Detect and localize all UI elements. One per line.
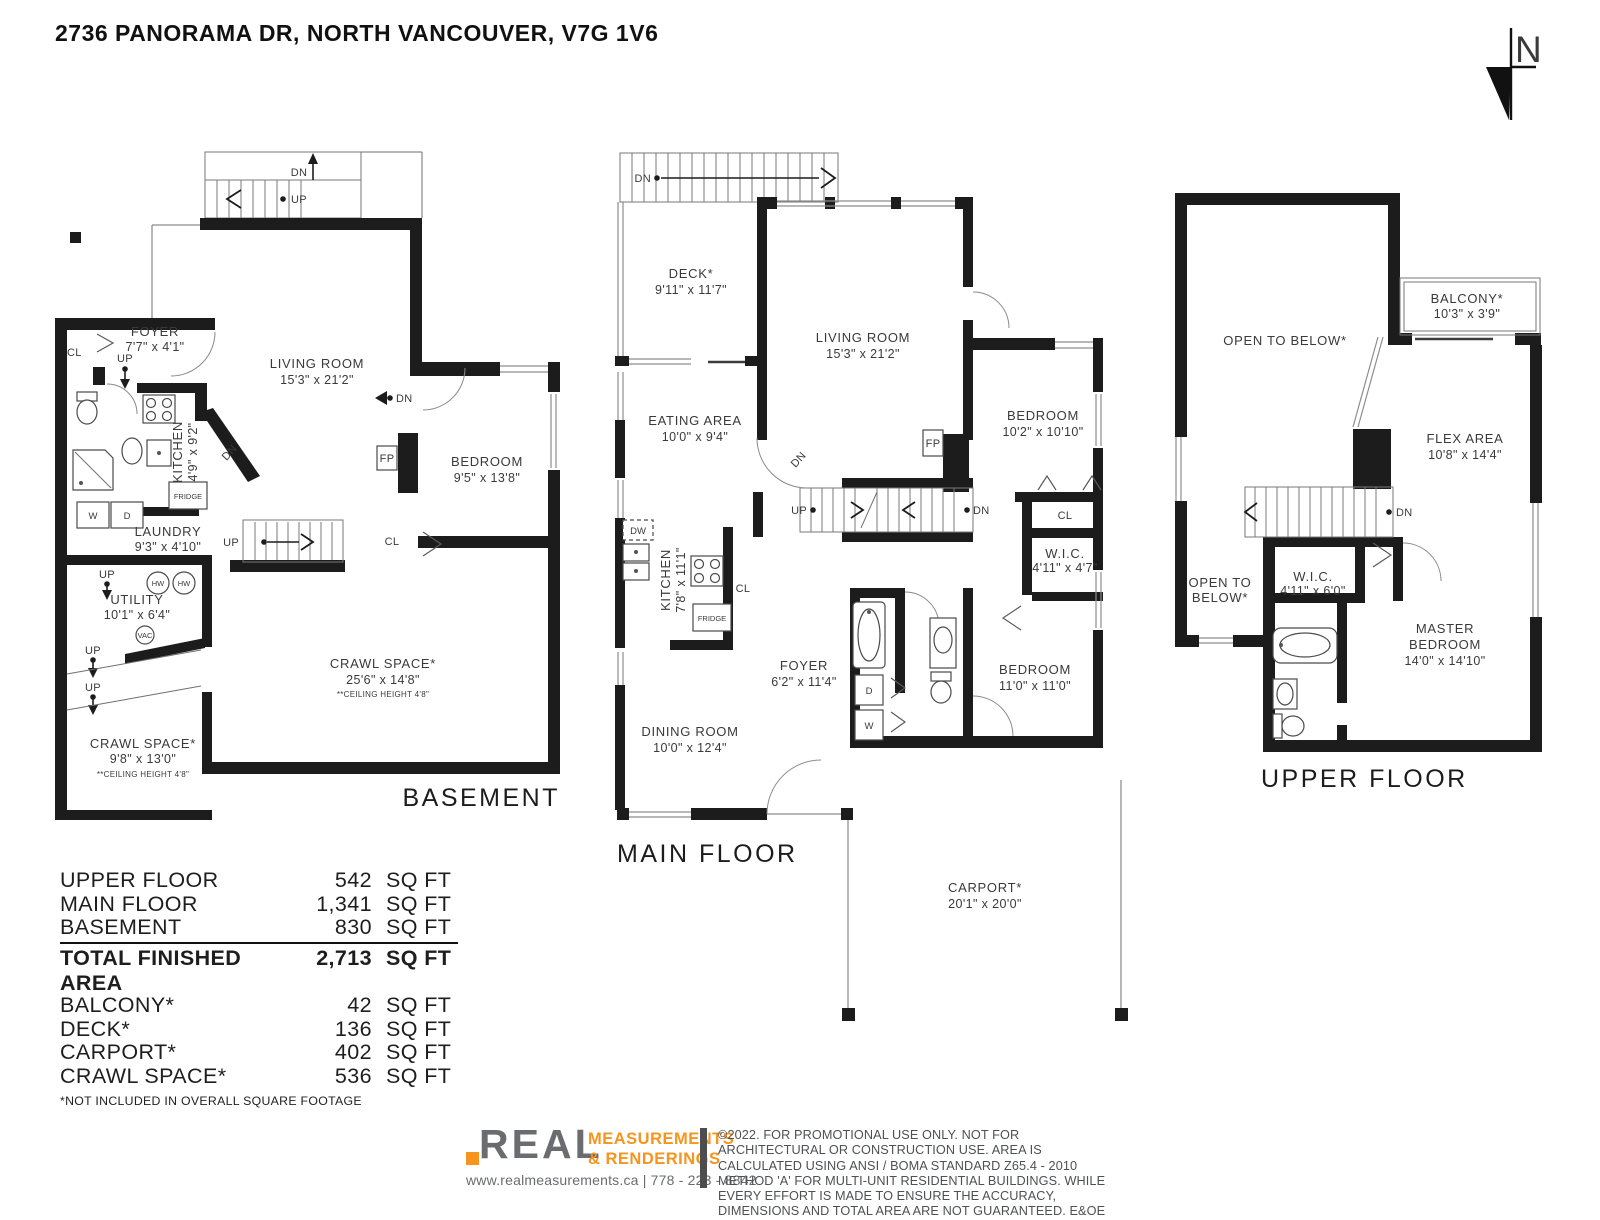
room-label: DECK*	[669, 266, 714, 281]
floor-title-main: MAIN FLOOR	[617, 840, 798, 868]
stair-dn-label: DN	[291, 167, 308, 179]
mid-stairs: UP	[223, 520, 343, 562]
room-label: CRAWL SPACE*	[330, 656, 436, 671]
north-label: N	[1515, 29, 1542, 70]
stair-dn-label: DN	[635, 173, 652, 185]
stairs: DN	[620, 153, 838, 202]
area-label: BASEMENT	[60, 915, 286, 940]
room-label: DINING ROOM	[641, 724, 738, 739]
room-dims: 14'0" x 14'10"	[1404, 654, 1485, 668]
floor-title-basement: BASEMENT	[402, 784, 560, 812]
toilet-icon	[1273, 714, 1304, 738]
mid-stairs: UP DN	[791, 488, 989, 532]
room-label: MASTER	[1416, 621, 1474, 636]
room-dims: 15'3" x 21'2"	[826, 347, 900, 361]
area-row-basement: BASEMENT 830 SQ FT	[60, 915, 458, 939]
room-dims: 7'7" x 4'1"	[125, 340, 184, 354]
fridge-label: FRIDGE	[174, 492, 202, 501]
area-row-deck: DECK* 136 SQ FT	[60, 1017, 458, 1041]
mid-stair-up-label: UP	[791, 505, 807, 517]
north-arrow-icon: N	[1455, 15, 1555, 135]
room-label: FLEX AREA	[1426, 431, 1503, 446]
kitchen-sink-icon	[623, 544, 649, 580]
room-dims: 25'6" x 14'8"	[346, 673, 420, 687]
stove-icon	[691, 556, 723, 586]
room-label: BEDROOM	[1409, 637, 1481, 652]
room-label: BALCONY*	[1431, 291, 1504, 306]
room-label: FOYER	[780, 658, 828, 673]
vanity-sink-icon	[930, 618, 956, 668]
room-label: OPEN TO BELOW*	[1223, 333, 1346, 348]
room-dims: 10'3" x 3'9"	[1434, 307, 1500, 321]
mid-stair-up-label: UP	[223, 537, 239, 549]
room-note: **CEILING HEIGHT 4'8"	[337, 690, 429, 699]
room-label: EATING AREA	[648, 413, 741, 428]
mid-stair-dn-label: DN	[973, 505, 990, 517]
closet-label: CL	[1058, 510, 1073, 522]
basement-floor-plan: DN UP	[55, 140, 570, 830]
dn-label: DN	[396, 393, 413, 405]
up-label: UP	[85, 682, 101, 694]
area-label: UPPER FLOOR	[60, 868, 286, 893]
dryer-label: D	[866, 686, 873, 697]
floor-title-upper: UPPER FLOOR	[1261, 765, 1468, 793]
toilet-icon	[77, 392, 97, 424]
room-label: KITCHEN	[658, 549, 673, 611]
logo-wordmark: REAL	[479, 1124, 603, 1165]
room-dims: 11'0" x 11'0"	[999, 679, 1071, 693]
area-value: 542	[286, 868, 372, 893]
area-footnote: *NOT INCLUDED IN OVERALL SQUARE FOOTAGE	[60, 1094, 458, 1108]
room-dims: 15'3" x 21'2"	[280, 373, 354, 387]
fp-label: FP	[380, 453, 395, 465]
room-label: CARPORT*	[948, 880, 1022, 895]
hot-water-tank-icon: HW HW	[147, 572, 195, 594]
washer-label: W	[865, 721, 874, 732]
area-label: TOTAL FINISHED AREA	[60, 946, 286, 996]
area-label: MAIN FLOOR	[60, 892, 286, 917]
fp-label: FP	[926, 438, 941, 450]
stairs: DN	[1245, 487, 1413, 537]
fireplace-icon: FP	[377, 446, 397, 470]
room-dims: 9'11" x 11'7"	[655, 283, 727, 297]
room-label: BEDROOM	[451, 454, 523, 469]
area-value: 136	[286, 1017, 372, 1042]
room-dims: 10'1" x 6'4"	[104, 608, 170, 622]
disclaimer-text: ©2022. FOR PROMOTIONAL USE ONLY. NOT FOR…	[718, 1128, 1112, 1220]
area-label: DECK*	[60, 1017, 286, 1042]
door-arcs	[1373, 543, 1441, 581]
vac-label: VAC	[138, 631, 153, 640]
area-label: BALCONY*	[60, 993, 286, 1018]
logo-tagline-1: MEASUREMENTS	[588, 1130, 734, 1149]
hw-label: HW	[178, 579, 191, 588]
logo-contact-line: www.realmeasurements.ca | 778 - 223 - 88…	[466, 1172, 757, 1188]
up-label: UP	[99, 569, 115, 581]
closet-label: CL	[736, 583, 751, 595]
stairs: DN UP	[205, 152, 422, 218]
page-title: 2736 PANORAMA DR, NORTH VANCOUVER, V7G 1…	[55, 20, 658, 47]
closet-label: CL	[67, 347, 82, 359]
bathtub-icon	[853, 602, 885, 668]
vacuum-icon: VAC	[136, 626, 154, 644]
room-dims: 10'0" x 12'4"	[653, 741, 727, 755]
area-summary-table: UPPER FLOOR 542 SQ FT MAIN FLOOR 1,341 S…	[60, 868, 458, 1108]
room-label: BELOW*	[1192, 590, 1248, 605]
area-row-total: TOTAL FINISHED AREA 2,713 SQ FT	[60, 942, 458, 970]
fireplace-icon: FP	[923, 430, 943, 456]
area-row-balcony: BALCONY* 42 SQ FT	[60, 993, 458, 1017]
room-label: CRAWL SPACE*	[90, 736, 196, 751]
room-dims: 10'8" x 14'4"	[1428, 448, 1502, 462]
area-unit: SQ FT	[372, 1040, 458, 1065]
up-label: UP	[117, 353, 133, 365]
carport: CARPORT* 20'1" x 20'0"	[842, 780, 1128, 1021]
room-dims: 10'2" x 10'10"	[1002, 425, 1083, 439]
hw-label: HW	[152, 579, 165, 588]
area-row-main-floor: MAIN FLOOR 1,341 SQ FT	[60, 892, 458, 916]
room-dims: 9'8" x 13'0"	[110, 752, 176, 766]
room-label: BEDROOM	[1007, 408, 1079, 423]
area-label: CARPORT*	[60, 1040, 286, 1065]
washer-box: W	[855, 710, 883, 740]
stair-dn-label: DN	[1396, 507, 1413, 519]
area-unit: SQ FT	[372, 1064, 458, 1089]
room-label: W.I.C.	[1045, 546, 1085, 561]
shower-icon	[73, 450, 113, 490]
area-row-crawl-space: CRAWL SPACE* 536 SQ FT	[60, 1064, 458, 1088]
dryer-box: D	[855, 675, 883, 705]
area-unit: SQ FT	[372, 892, 458, 917]
room-label: UTILITY	[110, 592, 163, 607]
room-label: LIVING ROOM	[270, 356, 364, 371]
footer-divider-bar	[700, 1128, 707, 1188]
toilet-icon	[931, 672, 951, 703]
room-label: LIVING ROOM	[816, 330, 910, 345]
area-unit: SQ FT	[372, 946, 458, 971]
bathtub-icon	[1273, 628, 1337, 663]
area-row-upper-floor: UPPER FLOOR 542 SQ FT	[60, 868, 458, 892]
dw-label: DW	[630, 526, 646, 537]
area-value: 402	[286, 1040, 372, 1065]
area-unit: SQ FT	[372, 915, 458, 940]
bathroom-sink-icon	[1273, 679, 1297, 709]
room-dims: 4'11" x 4'7"	[1032, 561, 1097, 575]
main-floor-plan: DN	[595, 140, 1127, 1035]
area-value: 42	[286, 993, 372, 1018]
fridge-box: FRIDGE	[693, 604, 731, 631]
dryer-label: D	[124, 511, 131, 522]
area-value: 1,341	[286, 892, 372, 917]
room-label: W.I.C.	[1293, 569, 1333, 584]
area-unit: SQ FT	[372, 1017, 458, 1042]
area-value: 536	[286, 1064, 372, 1089]
room-dims: 20'1" x 20'0"	[948, 897, 1022, 911]
fridge-box: FRIDGE	[169, 482, 207, 509]
room-dims: 7'8" x 11'1"	[674, 547, 688, 612]
area-unit: SQ FT	[372, 868, 458, 893]
room-label: LAUNDRY	[135, 524, 202, 539]
stair-up-label: UP	[291, 194, 307, 206]
closet-label: CL	[385, 536, 400, 548]
area-value: 2,713	[286, 946, 372, 971]
area-value: 830	[286, 915, 372, 940]
balcony: BALCONY* 10'3" x 3'9"	[1400, 278, 1540, 335]
room-label: KITCHEN	[170, 421, 185, 483]
dn-label: DN	[789, 450, 809, 470]
walls	[1175, 193, 1542, 752]
logo-accent-square	[466, 1152, 479, 1165]
kitchen-sink-icon	[147, 440, 171, 466]
room-label: FOYER	[131, 324, 179, 339]
fridge-label: FRIDGE	[698, 614, 726, 623]
room-note: **CEILING HEIGHT 4'8"	[97, 770, 189, 779]
washer-label: W	[89, 511, 98, 522]
room-dims: 9'3" x 4'10"	[135, 540, 201, 554]
room-dims: 9'5" x 13'8"	[454, 471, 520, 485]
room-dims: 4'11" x 6'0"	[1280, 584, 1345, 598]
room-label: OPEN TO	[1189, 575, 1252, 590]
stove-icon	[143, 395, 175, 423]
area-row-carport: CARPORT* 402 SQ FT	[60, 1040, 458, 1064]
room-dims: 6'2" x 11'4"	[771, 675, 836, 689]
bathroom-sink-icon	[122, 438, 142, 464]
room-labels: CL FOYER 7'7" x 4'1" LIVING ROOM 15'3" x…	[67, 324, 523, 779]
upper-floor-plan: BALCONY* 10'3" x 3'9" DN OPEN TO BELOW* …	[1145, 185, 1555, 800]
washer-box: W	[77, 502, 109, 528]
dishwasher-box: DW	[623, 520, 653, 540]
north-triangle	[1486, 67, 1511, 120]
room-dims: 10'0" x 9'4"	[662, 430, 728, 444]
room-label: BEDROOM	[999, 662, 1071, 677]
area-label: CRAWL SPACE*	[60, 1064, 286, 1089]
area-unit: SQ FT	[372, 993, 458, 1018]
room-dims: 4'9" x 9'2"	[186, 422, 200, 481]
up-label: UP	[85, 645, 101, 657]
